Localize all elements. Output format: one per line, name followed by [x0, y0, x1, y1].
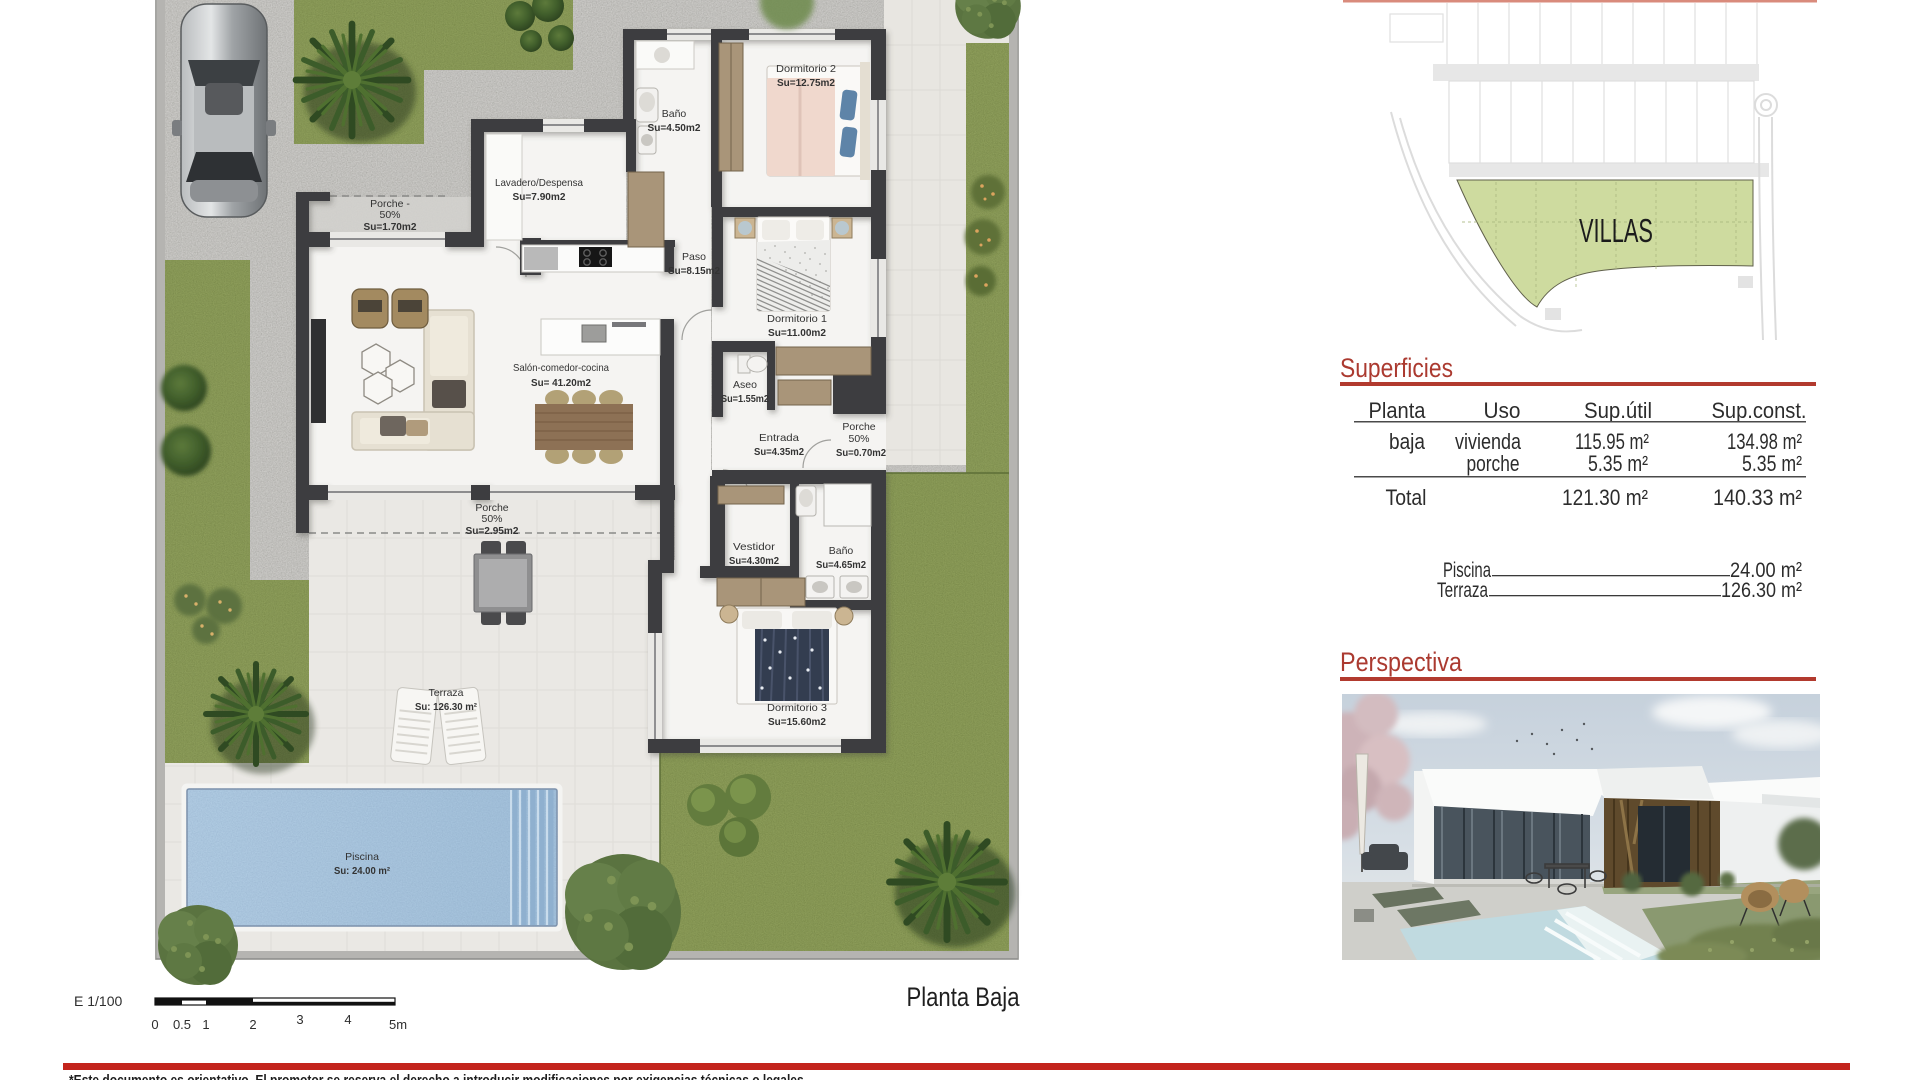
svg-text:3: 3 — [296, 1012, 303, 1027]
svg-text:Vestidor: Vestidor — [733, 541, 776, 553]
svg-text:5.35 m²: 5.35 m² — [1742, 451, 1802, 476]
svg-text:Total: Total — [1386, 485, 1427, 510]
svg-text:Su=1.70m2: Su=1.70m2 — [364, 221, 417, 233]
svg-text:1: 1 — [202, 1017, 209, 1032]
svg-text:Sup.útil: Sup.útil — [1584, 398, 1652, 423]
svg-text:VILLAS: VILLAS — [1579, 212, 1653, 249]
svg-text:5.35 m²: 5.35 m² — [1588, 451, 1648, 476]
svg-text:Uso: Uso — [1484, 398, 1521, 423]
svg-text:Terraza: Terraza — [1437, 579, 1488, 602]
svg-text:Aseo: Aseo — [733, 379, 757, 391]
svg-text:Su=12.75m2: Su=12.75m2 — [777, 77, 835, 89]
svg-text:Su=4.35m2: Su=4.35m2 — [754, 446, 804, 458]
svg-text:Baño: Baño — [829, 545, 854, 557]
svg-text:*Este documento es orientativo: *Este documento es orientativo. El promo… — [69, 1073, 807, 1080]
svg-text:140.33 m²: 140.33 m² — [1713, 485, 1802, 510]
svg-text:121.30 m²: 121.30 m² — [1562, 485, 1648, 510]
svg-text:5m: 5m — [389, 1017, 407, 1032]
svg-text:Su=15.60m2: Su=15.60m2 — [768, 716, 826, 728]
svg-text:50%: 50% — [379, 209, 400, 221]
svg-text:Su=4.50m2: Su=4.50m2 — [648, 122, 701, 134]
svg-text:2: 2 — [249, 1017, 256, 1032]
svg-text:Terraza: Terraza — [428, 687, 463, 699]
svg-text:0: 0 — [151, 1017, 158, 1032]
svg-text:Dormitorio 2: Dormitorio 2 — [776, 63, 836, 75]
svg-text:Su: 24.00 m²: Su: 24.00 m² — [334, 865, 390, 877]
svg-text:0.5: 0.5 — [173, 1017, 191, 1032]
svg-text:Planta Baja: Planta Baja — [907, 982, 1021, 1012]
svg-text:Su=1.55m2: Su=1.55m2 — [721, 393, 769, 405]
svg-text:Su=4.65m2: Su=4.65m2 — [816, 559, 866, 571]
svg-text:Baño: Baño — [662, 108, 687, 120]
svg-text:Sup.const.: Sup.const. — [1712, 398, 1807, 423]
svg-text:Planta: Planta — [1369, 398, 1427, 423]
svg-text:Salón-comedor-cocina: Salón-comedor-cocina — [513, 362, 609, 374]
svg-text:Su=4.30m2: Su=4.30m2 — [729, 555, 779, 567]
svg-text:50%: 50% — [848, 433, 869, 445]
svg-text:50%: 50% — [481, 513, 502, 525]
svg-text:Lavadero/Despensa: Lavadero/Despensa — [495, 177, 583, 189]
svg-text:porche: porche — [1467, 451, 1520, 476]
svg-text:Su=8.15m2: Su=8.15m2 — [668, 265, 720, 277]
svg-text:Dormitorio 1: Dormitorio 1 — [767, 313, 827, 325]
svg-text:Su: 126.30 m²: Su: 126.30 m² — [415, 701, 477, 713]
svg-text:Su= 41.20m2: Su= 41.20m2 — [531, 377, 591, 389]
svg-text:Perspectiva: Perspectiva — [1340, 647, 1463, 677]
svg-text:Entrada: Entrada — [759, 432, 799, 444]
svg-text:126.30 m²: 126.30 m² — [1721, 579, 1802, 602]
svg-text:Su=2.95m2: Su=2.95m2 — [466, 525, 519, 537]
svg-text:Piscina: Piscina — [345, 851, 379, 863]
svg-text:Paso: Paso — [682, 251, 706, 263]
svg-text:Su=7.90m2: Su=7.90m2 — [513, 191, 566, 203]
svg-text:Dormitorio 3: Dormitorio 3 — [767, 702, 827, 714]
svg-text:E 1/100: E 1/100 — [74, 993, 122, 1009]
svg-text:Porche: Porche — [842, 421, 875, 433]
svg-text:baja: baja — [1389, 429, 1426, 454]
svg-text:Superficies: Superficies — [1340, 353, 1453, 383]
svg-text:Su=0.70m2: Su=0.70m2 — [836, 447, 886, 459]
svg-text:Su=11.00m2: Su=11.00m2 — [768, 327, 826, 339]
svg-text:4: 4 — [344, 1012, 351, 1027]
